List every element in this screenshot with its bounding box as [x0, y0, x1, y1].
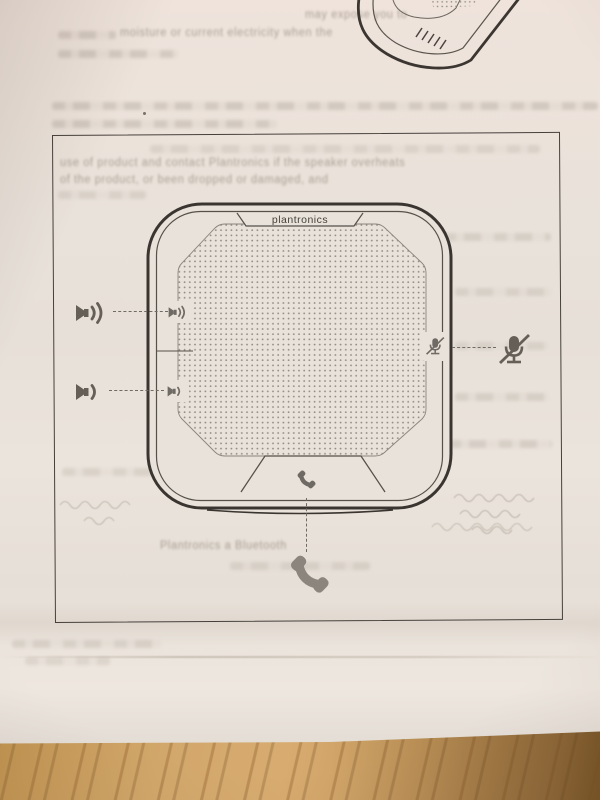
callout-call-icon [281, 551, 333, 603]
callout-volume-down-icon [74, 378, 104, 406]
connector-hatching [416, 28, 446, 49]
device-base-lip [207, 510, 393, 514]
leader-line-mute [452, 347, 496, 348]
leader-line-volume-down [109, 390, 164, 391]
device-brand-label: plantronics [272, 214, 328, 226]
leader-line-call [306, 498, 307, 552]
device-outer-outline [358, 0, 524, 68]
illegible-print-smudge [58, 31, 116, 39]
callout-volume-up-icon [74, 299, 110, 327]
speakerphone-diagram: plantronics [141, 197, 459, 519]
device-volume-up-button [165, 301, 193, 323]
partial-device-drawing [330, 0, 550, 112]
illegible-print-smudge [25, 657, 110, 665]
ink-speck [143, 112, 146, 115]
speaker-grille-dots [426, 0, 482, 8]
speaker-grille [178, 224, 426, 456]
illegible-print-smudge [12, 640, 162, 648]
illegible-print-smudge [52, 120, 277, 128]
photographed-manual-page: may expose you to moisture or current el… [0, 0, 600, 800]
illegible-print-smudge [58, 50, 178, 58]
callout-mute-icon [495, 330, 532, 368]
device-inner-outline [373, 0, 506, 54]
device-volume-down-button [164, 380, 189, 402]
device-mute-button [421, 332, 449, 361]
leader-line-volume-up [113, 311, 168, 312]
